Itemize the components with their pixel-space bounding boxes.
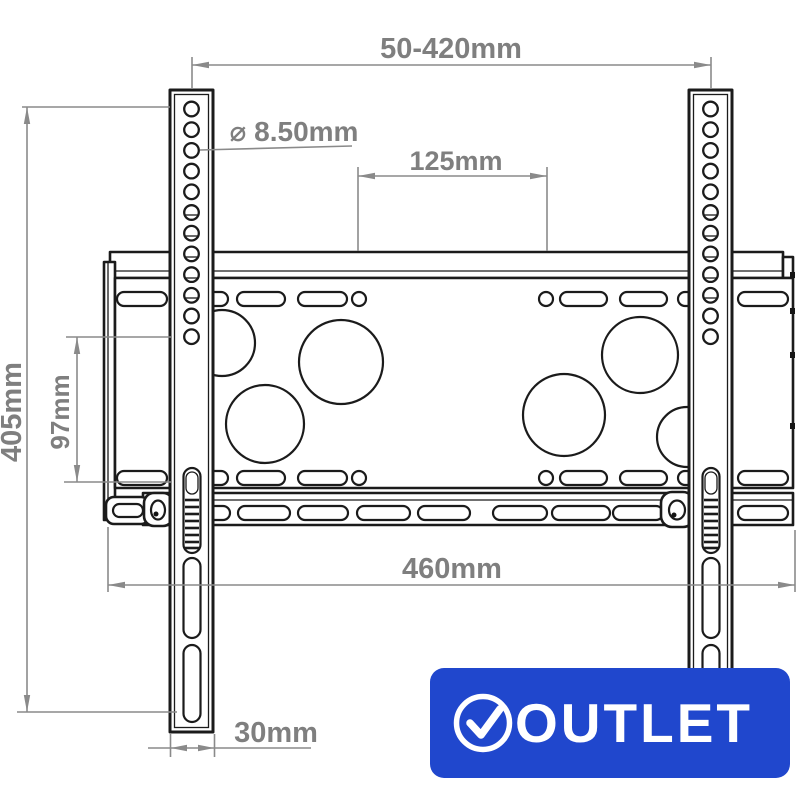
outlet-badge: OUTLET: [430, 668, 790, 778]
right-bracket-screw-slot: [703, 468, 720, 553]
dim-slot-spacing-label: 97mm: [45, 374, 75, 449]
right-bracket-slot-upper: [703, 558, 720, 638]
dim-hole-diameter: ⌀ 8.50mm: [200, 116, 358, 150]
tv-wall-mount-diagram: 50-420mm ⌀ 8.50mm 125mm 405mm 97mm: [0, 0, 800, 800]
left-bracket-slot-lower: [184, 645, 201, 722]
dim-bracket-width-label: 30mm: [234, 717, 318, 749]
dim-overall-height-label: 405mm: [0, 362, 28, 462]
dim-top-range-label: 50-420mm: [380, 33, 522, 65]
dim-plate-width-label: 460mm: [402, 553, 502, 585]
dim-hole-diameter-label: ⌀ 8.50mm: [230, 116, 359, 147]
left-bracket-screw-slot: [184, 468, 201, 553]
dim-top-range: 50-420mm: [192, 33, 711, 88]
left-locking-clamp: [106, 493, 173, 526]
left-vesa-bracket: [170, 90, 213, 732]
dim-hole-spacing: 125mm: [358, 146, 547, 251]
dim-hole-spacing-label: 125mm: [409, 146, 502, 176]
left-bracket-slot-upper: [184, 558, 201, 638]
outlet-badge-label: OUTLET: [515, 692, 753, 754]
right-vesa-bracket: [689, 90, 732, 732]
